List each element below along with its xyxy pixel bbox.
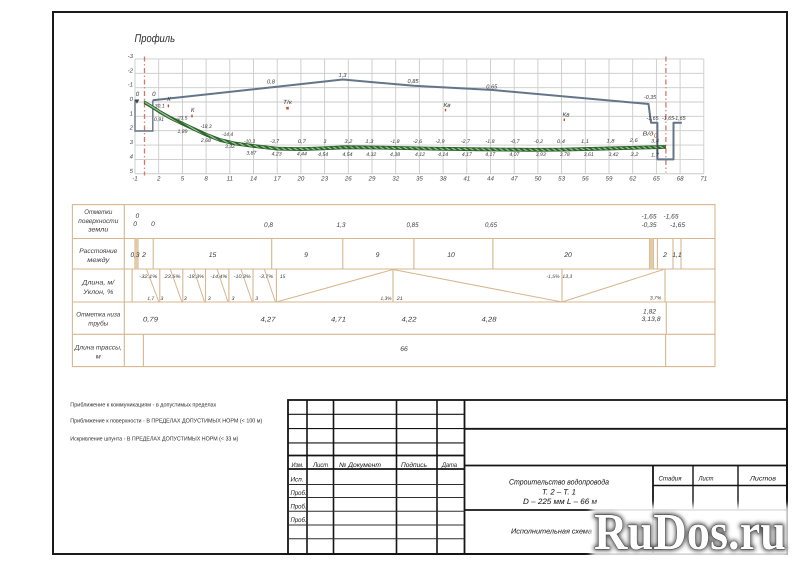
svg-text:-1,65: -1,65 xyxy=(663,214,678,221)
svg-text:56: 56 xyxy=(582,175,589,182)
svg-text:-10,3: -10,3 xyxy=(244,139,255,145)
svg-text:Приближение к поверхности - В: Приближение к поверхности - В ПРЕДЕЛАХ Д… xyxy=(70,418,262,425)
svg-text:4,14: 4,14 xyxy=(438,152,448,158)
svg-text:0,4: 0,4 xyxy=(557,139,565,145)
svg-text:-1,8: -1,8 xyxy=(486,139,495,145)
svg-text:-1,8: -1,8 xyxy=(391,139,400,145)
svg-text:1,3: 1,3 xyxy=(337,222,346,229)
svg-text:0: 0 xyxy=(136,91,140,98)
svg-text:Исполнительная схема: Исполнительная схема xyxy=(511,527,592,536)
svg-text:0,3: 0,3 xyxy=(131,252,140,259)
svg-text:4,17: 4,17 xyxy=(485,152,496,158)
svg-text:3,7%: 3,7% xyxy=(650,296,662,302)
svg-text:-2,9: -2,9 xyxy=(436,139,445,145)
svg-text:15: 15 xyxy=(280,274,286,280)
svg-text:1,3: 1,3 xyxy=(339,72,348,79)
svg-text:9: 9 xyxy=(304,252,308,259)
svg-text:Кв: Кв xyxy=(444,102,451,109)
svg-text:0,79: 0,79 xyxy=(143,317,158,324)
svg-text:Проб.: Проб. xyxy=(291,490,307,497)
svg-text:32: 32 xyxy=(392,175,399,182)
svg-text:-1,5%: -1,5% xyxy=(546,274,560,280)
svg-text:3,61: 3,61 xyxy=(584,152,594,158)
svg-text:2,68: 2,68 xyxy=(200,138,211,144)
svg-text:Длина, м/: Длина, м/ xyxy=(81,280,115,287)
svg-text:Уклон, %: Уклон, % xyxy=(82,289,113,296)
svg-text:4,38: 4,38 xyxy=(390,152,400,158)
svg-text:4: 4 xyxy=(130,153,134,160)
svg-text:-1: -1 xyxy=(132,175,138,182)
svg-text:53: 53 xyxy=(558,175,565,182)
svg-text:D – 225 мм L – 66 м: D – 225 мм L – 66 м xyxy=(523,497,598,506)
svg-text:0,85: 0,85 xyxy=(407,222,419,229)
svg-text:3,2: 3,2 xyxy=(631,152,639,158)
svg-text:1,7: 1,7 xyxy=(147,296,154,302)
svg-text:Стадия: Стадия xyxy=(659,476,682,483)
svg-text:-2,6: -2,6 xyxy=(413,139,422,145)
svg-text:3: 3 xyxy=(323,139,326,145)
svg-text:между: между xyxy=(87,257,110,264)
svg-text:0: 0 xyxy=(152,91,156,98)
svg-text:38: 38 xyxy=(440,175,447,182)
svg-text:-1,65: -1,65 xyxy=(674,115,687,122)
svg-text:-0,7: -0,7 xyxy=(511,139,521,145)
svg-text:0,65: 0,65 xyxy=(485,222,497,229)
svg-text:-3,7: -3,7 xyxy=(270,139,280,145)
svg-text:3: 3 xyxy=(130,139,134,146)
svg-text:3,93: 3,93 xyxy=(536,152,546,158)
svg-text:Расстояние: Расстояние xyxy=(79,248,117,255)
svg-text:Строительство водопровода: Строительство водопровода xyxy=(509,477,610,486)
svg-text:68: 68 xyxy=(677,175,684,182)
svg-text:К: К xyxy=(191,107,195,114)
svg-text:Листов: Листов xyxy=(749,476,777,483)
svg-text:44: 44 xyxy=(487,175,494,182)
svg-text:0,65: 0,65 xyxy=(486,83,498,90)
svg-text:-0,35: -0,35 xyxy=(641,222,656,229)
svg-text:-0,2: -0,2 xyxy=(534,139,543,145)
svg-text:0: 0 xyxy=(130,96,134,103)
svg-text:Исп.: Исп. xyxy=(291,477,304,484)
svg-text:2: 2 xyxy=(156,175,161,182)
svg-text:35: 35 xyxy=(416,175,423,182)
svg-text:5: 5 xyxy=(130,168,134,175)
svg-text:0: 0 xyxy=(135,213,139,220)
svg-text:3: 3 xyxy=(255,296,258,302)
svg-text:Проб.: Проб. xyxy=(291,517,307,524)
svg-text:-2,7: -2,7 xyxy=(461,139,471,145)
svg-text:3,13,8: 3,13,8 xyxy=(642,316,661,323)
svg-text:29: 29 xyxy=(368,175,376,182)
svg-text:1,7: 1,7 xyxy=(651,152,660,158)
svg-text:Изм.: Изм. xyxy=(292,462,304,469)
svg-text:3,87: 3,87 xyxy=(246,150,257,156)
svg-text:Отметка низа: Отметка низа xyxy=(76,312,120,319)
svg-text:4,71: 4,71 xyxy=(331,317,346,324)
svg-text:Длина трассы,: Длина трассы, xyxy=(74,345,122,352)
svg-text:41: 41 xyxy=(463,175,470,182)
svg-text:3,42: 3,42 xyxy=(609,152,619,158)
svg-text:26: 26 xyxy=(344,175,352,182)
svg-text:Отметки: Отметки xyxy=(84,209,112,216)
svg-text:1: 1 xyxy=(130,110,133,117)
svg-text:4,27: 4,27 xyxy=(261,317,276,324)
svg-text:-18,3: -18,3 xyxy=(201,124,212,130)
svg-text:RuDos.ru: RuDos.ru xyxy=(594,504,786,561)
svg-text:21: 21 xyxy=(396,296,403,302)
svg-text:4,28: 4,28 xyxy=(482,317,497,324)
svg-text:Т/к: Т/к xyxy=(283,99,293,106)
svg-text:1,89: 1,89 xyxy=(178,129,188,135)
svg-text:3,32: 3,32 xyxy=(225,144,235,150)
svg-text:50: 50 xyxy=(534,175,541,182)
svg-text:1,3%: 1,3% xyxy=(381,296,393,302)
svg-text:14: 14 xyxy=(250,175,257,182)
svg-text:-3,7%: -3,7% xyxy=(259,274,274,280)
svg-text:-1,65: -1,65 xyxy=(670,222,685,229)
svg-text:1,8: 1,8 xyxy=(607,139,615,145)
svg-text:1,82: 1,82 xyxy=(643,309,656,316)
svg-text:10: 10 xyxy=(447,252,455,259)
svg-text:Подпись: Подпись xyxy=(401,462,428,469)
svg-text:земли: земли xyxy=(87,227,108,234)
svg-text:3: 3 xyxy=(184,296,187,302)
svg-text:0: 0 xyxy=(133,221,137,228)
svg-text:В/д: В/д xyxy=(643,130,655,137)
svg-text:9: 9 xyxy=(376,252,380,259)
svg-text:4,07: 4,07 xyxy=(509,152,520,158)
svg-text:3: 3 xyxy=(232,296,235,302)
svg-text:-23,5: -23,5 xyxy=(176,115,187,121)
svg-text:-14,4: -14,4 xyxy=(222,132,233,138)
svg-text:1,1: 1,1 xyxy=(672,252,682,259)
svg-text:-1,65: -1,65 xyxy=(647,115,660,122)
svg-text:Приближение к коммуникациям -: Приближение к коммуникациям - в допустим… xyxy=(70,401,216,408)
svg-text:К: К xyxy=(167,96,171,103)
svg-text:Проб.: Проб. xyxy=(291,504,307,511)
svg-text:66: 66 xyxy=(400,346,408,353)
svg-text:трубы: трубы xyxy=(88,321,108,328)
svg-text:4,12: 4,12 xyxy=(415,152,425,158)
svg-text:2,6: 2,6 xyxy=(629,138,638,144)
svg-text:0,8: 0,8 xyxy=(264,222,273,229)
svg-text:Т. 2 – Т. 1: Т. 2 – Т. 1 xyxy=(542,487,576,496)
svg-text:-0,35: -0,35 xyxy=(644,94,657,101)
svg-text:Лист: Лист xyxy=(698,476,714,483)
svg-text:3,2: 3,2 xyxy=(344,139,352,145)
svg-text:Профиль: Профиль xyxy=(135,33,176,45)
svg-text:2: 2 xyxy=(141,252,146,259)
svg-text:3: 3 xyxy=(208,296,211,302)
svg-text:5: 5 xyxy=(181,175,185,182)
svg-text:0,7: 0,7 xyxy=(298,139,307,145)
svg-text:0,8: 0,8 xyxy=(267,79,276,86)
svg-text:-18,3%: -18,3% xyxy=(187,274,205,280)
svg-text:Искривление шпунта - В ПРЕДЕЛ: Искривление шпунта - В ПРЕДЕЛАХ ДОПУСТИМ… xyxy=(70,436,238,443)
svg-text:4,32: 4,32 xyxy=(366,152,376,158)
svg-text:0,85: 0,85 xyxy=(408,78,420,85)
svg-text:13,3: 13,3 xyxy=(562,274,572,280)
svg-text:59: 59 xyxy=(606,175,613,182)
svg-text:поверхности: поверхности xyxy=(78,218,118,225)
svg-text:4,22: 4,22 xyxy=(402,317,417,324)
svg-text:4,54: 4,54 xyxy=(343,152,353,158)
svg-text:17: 17 xyxy=(274,175,281,182)
svg-text:71: 71 xyxy=(700,175,707,182)
svg-text:0,91: 0,91 xyxy=(154,117,164,123)
svg-text:-3: -3 xyxy=(128,53,134,60)
svg-text:4,54: 4,54 xyxy=(318,152,328,158)
svg-text:15: 15 xyxy=(209,252,217,259)
svg-text:-1: -1 xyxy=(128,82,133,89)
svg-text:4,17: 4,17 xyxy=(462,152,473,158)
svg-text:-1,65: -1,65 xyxy=(641,214,656,221)
svg-text:4,44: 4,44 xyxy=(297,152,307,158)
svg-text:Дата: Дата xyxy=(441,462,457,469)
svg-text:№ Документ: № Документ xyxy=(339,462,382,469)
svg-text:4,23: 4,23 xyxy=(272,152,282,158)
svg-text:-32,1%: -32,1% xyxy=(139,274,158,280)
svg-text:-14,4%: -14,4% xyxy=(210,274,228,280)
svg-text:3: 3 xyxy=(161,296,164,302)
svg-text:11: 11 xyxy=(227,175,233,182)
svg-text:Лист: Лист xyxy=(312,462,328,469)
svg-text:-2: -2 xyxy=(128,67,134,74)
svg-text:3,78: 3,78 xyxy=(560,152,570,158)
svg-text:Кв: Кв xyxy=(563,111,570,118)
svg-text:20: 20 xyxy=(296,175,304,182)
svg-text:1,3: 1,3 xyxy=(365,139,373,145)
svg-text:м: м xyxy=(96,353,102,360)
svg-text:2: 2 xyxy=(662,252,667,259)
svg-text:0: 0 xyxy=(151,221,155,228)
svg-text:1,1: 1,1 xyxy=(581,139,589,145)
svg-text:2: 2 xyxy=(129,125,134,132)
svg-text:-10,3%: -10,3% xyxy=(234,274,252,280)
svg-text:8: 8 xyxy=(204,175,208,182)
svg-text:30,1: 30,1 xyxy=(155,103,165,109)
svg-text:62: 62 xyxy=(629,175,636,182)
svg-text:65: 65 xyxy=(653,175,660,182)
svg-text:20: 20 xyxy=(563,252,572,259)
svg-text:23: 23 xyxy=(320,175,328,182)
svg-text:23,5%: 23,5% xyxy=(163,274,181,280)
svg-text:47: 47 xyxy=(511,175,518,182)
